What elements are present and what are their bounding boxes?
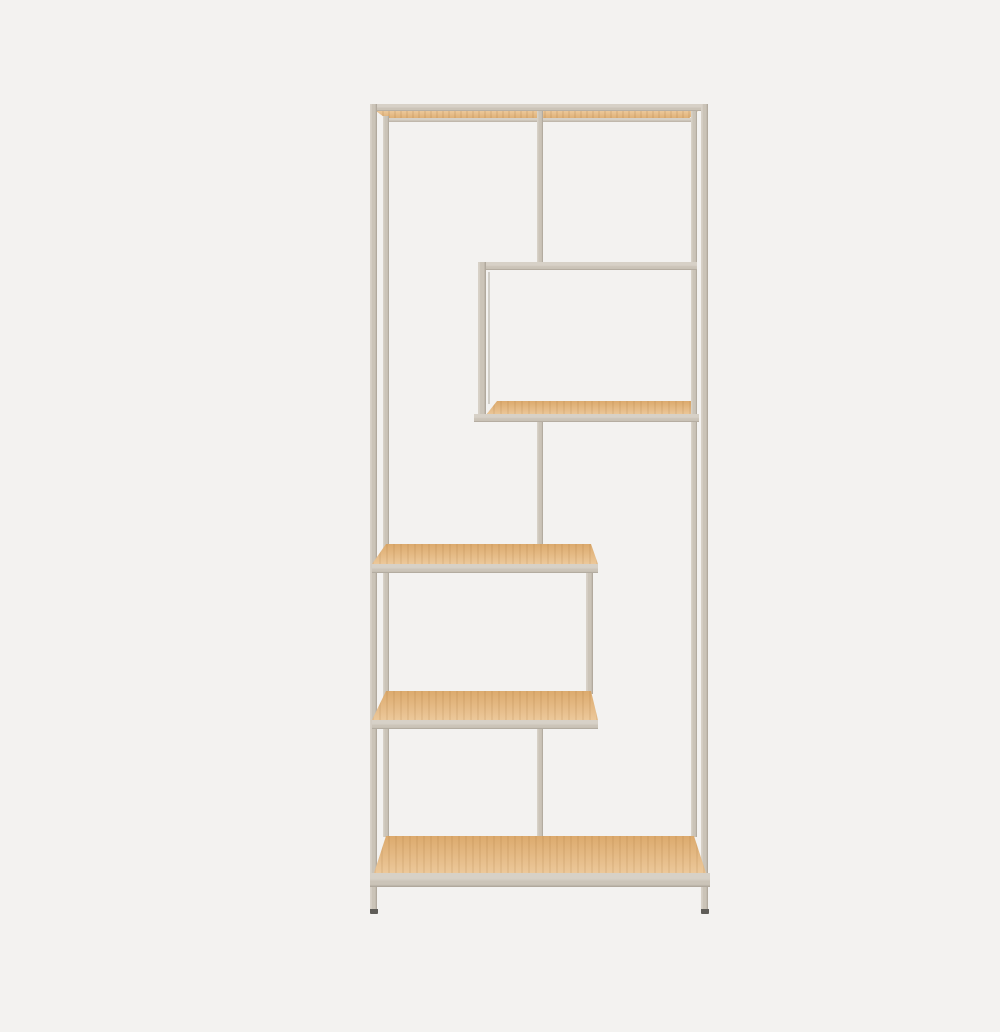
box-shelf-wood <box>486 401 691 415</box>
bottom-shelf-wood <box>374 836 706 873</box>
middle-shelf-lower-wood <box>372 691 598 720</box>
box-left-depth-line <box>488 272 490 404</box>
middle-shelf-lower-front-bar <box>372 720 598 729</box>
left-front-post <box>370 104 377 910</box>
bottom-front-bar <box>370 873 710 887</box>
center-divider-upper <box>537 111 543 262</box>
right-front-post <box>701 104 708 910</box>
right-back-post <box>691 111 697 837</box>
box-left-bar <box>478 262 486 422</box>
middle-right-support <box>586 573 593 694</box>
product-photo-bookshelf <box>40 16 1000 1016</box>
left-foot <box>370 909 378 914</box>
top-front-bar <box>370 104 708 111</box>
right-foot <box>701 909 709 914</box>
box-bottom-bar <box>474 414 699 422</box>
box-top-bar <box>481 262 697 270</box>
center-divider-middle <box>537 421 543 546</box>
middle-shelf-upper-wood <box>372 544 598 564</box>
middle-shelf-upper-front-bar <box>372 564 598 573</box>
